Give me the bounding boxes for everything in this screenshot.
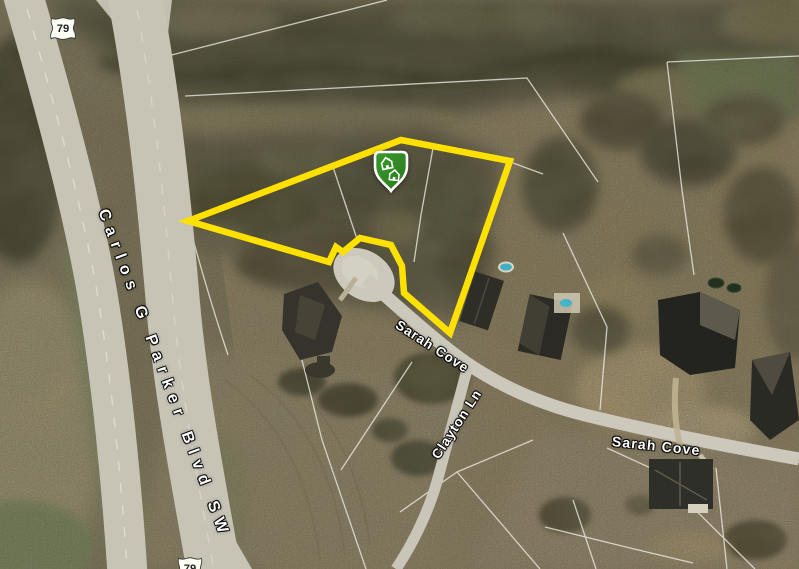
parcel-boundary[interactable] bbox=[188, 140, 510, 333]
marker-shield bbox=[375, 152, 407, 191]
route-number: 79 bbox=[57, 23, 69, 35]
parcel-boundary-overlay bbox=[0, 0, 799, 569]
route-number: 79 bbox=[184, 563, 196, 569]
route-shield-79-bottom: 79 bbox=[176, 556, 204, 569]
satellite-map[interactable]: Carlos G Parker Blvd SW Sarah Cove Clayt… bbox=[0, 0, 799, 569]
property-marker[interactable] bbox=[372, 149, 410, 193]
route-shield-79-top: 79 bbox=[49, 16, 77, 41]
